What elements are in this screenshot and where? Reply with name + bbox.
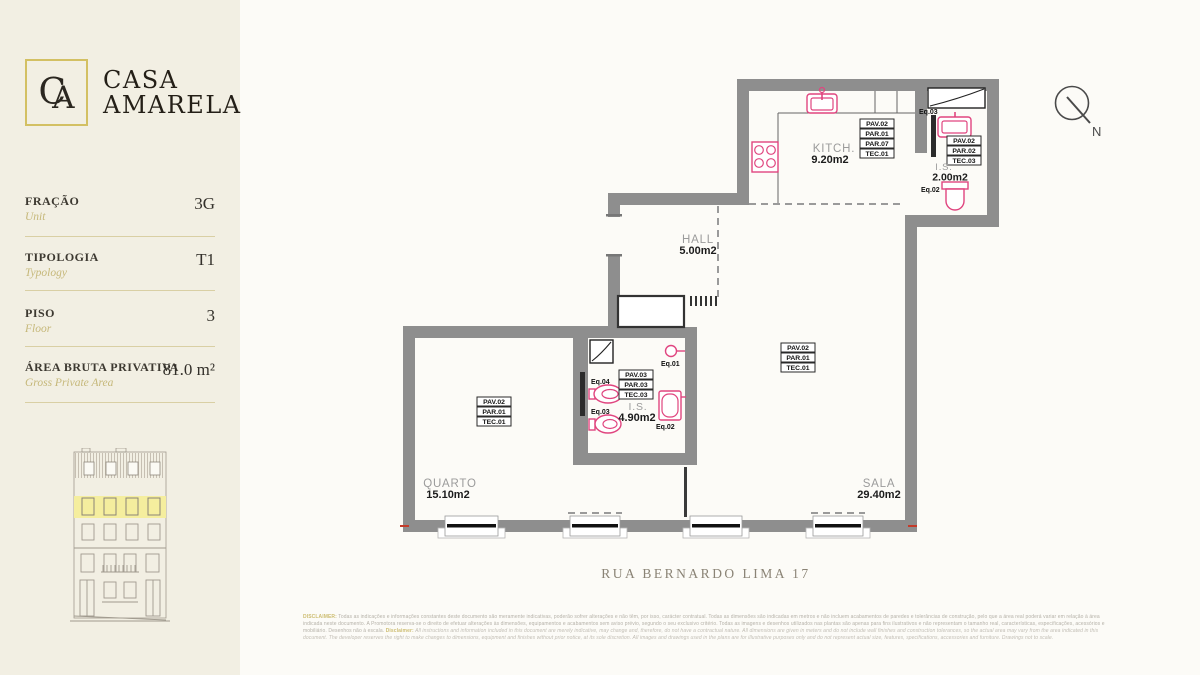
disclaimer-line1: DISCLAIMER: Todas as indicações e inform…	[303, 614, 1161, 621]
window	[563, 516, 627, 538]
wc-door-leaf	[931, 115, 936, 157]
wall-bathroom-right	[685, 338, 697, 465]
floorplan-brochure-page: { "brand": {"monogram_c": "C", "monogram…	[0, 0, 1200, 675]
wall-topbath-bottom	[915, 215, 999, 227]
finish-label: TEC.01	[865, 151, 888, 158]
living-finish-labels: PAV.02 PAR.01 TEC.01	[781, 343, 815, 372]
disclaimer-line3: mobiliário. Desenhos não à escala. Discl…	[303, 628, 1161, 635]
finish-label: PAR.01	[786, 355, 810, 362]
wall-hall-top	[608, 193, 749, 205]
room-area-hall: 5.00m2	[679, 245, 716, 257]
room-area-wc-small: 2.00m2	[932, 172, 968, 184]
bedroom-finish-labels: PAV.02 PAR.01 TEC.01	[477, 397, 511, 426]
room-area-bathroom: 4.90m2	[618, 412, 655, 424]
wall-topbath-right	[987, 91, 999, 227]
bidet-icon	[589, 385, 622, 403]
room-area-living: 29.40m2	[857, 489, 900, 501]
entrance-door-frame	[606, 254, 622, 257]
eq-label: Eq.03	[919, 109, 938, 116]
north-label: N	[1092, 124, 1101, 139]
light-fixture-icon	[666, 346, 686, 357]
finish-label: TEC.01	[786, 365, 809, 372]
street-address: RUA BERNARDO LIMA 17	[601, 566, 810, 581]
eq-label: Eq.02	[921, 187, 940, 194]
floor-plan: PAV.02 PAR.01 PAR.07 TEC.01 PAV.02 PAR.0…	[0, 0, 1200, 675]
finish-label: PAR.01	[482, 409, 506, 416]
hall-wardrobe	[618, 296, 684, 327]
disclaimer-line4: document. The developer reserves the rig…	[303, 635, 1161, 642]
room-area-bedroom: 15.10m2	[426, 489, 469, 501]
stove-icon	[752, 142, 778, 172]
wall-bedroom-top	[403, 326, 612, 338]
bathtub-icon	[659, 391, 686, 420]
finish-label: PAV.02	[866, 121, 888, 128]
finish-label: PAR.02	[952, 148, 976, 155]
dashed-boundaries	[568, 204, 905, 513]
wall-bedroom-left	[403, 338, 415, 532]
window	[683, 516, 749, 538]
finish-label: PAR.01	[865, 131, 889, 138]
finish-label: PAV.03	[625, 372, 647, 379]
eq-label: Eq.03	[591, 409, 610, 416]
disclaimer-lead-en: Disclaimer:	[386, 628, 414, 634]
finish-label: TEC.03	[624, 392, 647, 399]
finish-label: PAV.02	[953, 138, 975, 145]
shower-icon	[928, 88, 985, 108]
eq-label: Eq.01	[661, 361, 680, 368]
finish-label: PAV.02	[483, 399, 505, 406]
wall-kitchen-bath-divider	[915, 91, 927, 153]
washbasin-icon	[938, 112, 971, 137]
finish-label: PAR.07	[865, 141, 889, 148]
finish-label: PAV.02	[787, 345, 809, 352]
entrance-door-frame	[606, 214, 622, 217]
bathroom-finish-labels: PAV.03 PAR.03 TEC.03	[619, 370, 653, 399]
window	[806, 516, 870, 538]
finish-label: TEC.01	[482, 419, 505, 426]
finish-label: TEC.03	[952, 158, 975, 165]
room-area-kitchen: 9.20m2	[811, 154, 848, 166]
window	[438, 516, 505, 538]
disclaimer-lead-pt: DISCLAIMER:	[303, 614, 337, 620]
wall-bathroom-bottom	[573, 453, 697, 465]
kitchen-finish-labels: PAV.02 PAR.01 PAR.07 TEC.01	[860, 119, 894, 158]
disclaimer-text: DISCLAIMER: Todas as indicações e inform…	[303, 614, 1161, 642]
eq-label: Eq.02	[656, 424, 675, 431]
wall-kitchen-left	[737, 91, 749, 205]
wall-bathroom-top	[585, 327, 697, 338]
toilet-icon	[589, 415, 621, 433]
shower-icon	[590, 340, 613, 363]
bathroom-door-leaf	[580, 372, 585, 416]
wc-small-finish-labels: PAV.02 PAR.02 TEC.03	[947, 136, 981, 165]
finish-label: PAR.03	[624, 382, 648, 389]
disclaimer-line2: indicada neste documento. A Promotora re…	[303, 621, 1161, 628]
eq-label: Eq.04	[591, 379, 610, 386]
kitchen-sink-icon	[807, 88, 837, 114]
wall-living-right	[905, 215, 917, 532]
radiator	[691, 296, 716, 306]
north-compass-icon: N	[1056, 87, 1102, 140]
toilet-icon	[942, 182, 968, 210]
bedroom-living-partition	[684, 467, 687, 517]
